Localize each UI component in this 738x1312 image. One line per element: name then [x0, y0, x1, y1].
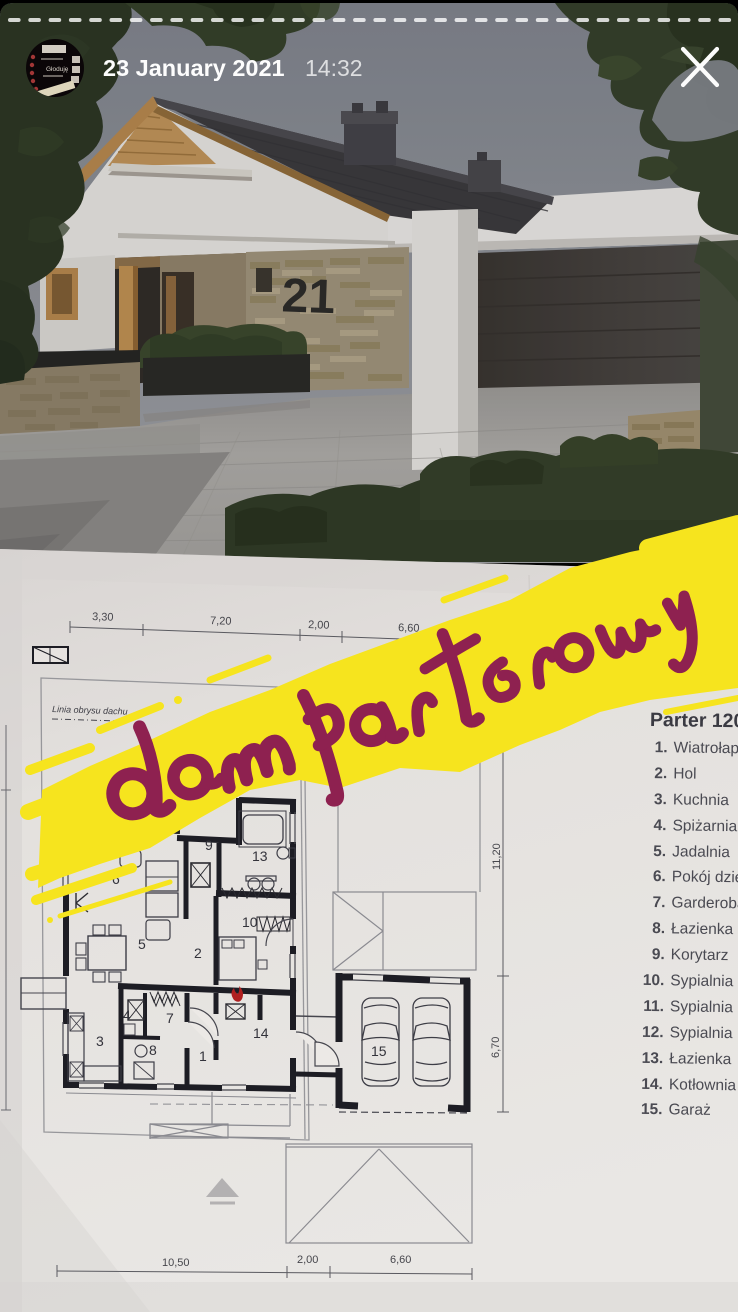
- svg-text:8: 8: [149, 1042, 157, 1058]
- svg-text:7.: 7.: [652, 894, 665, 911]
- svg-text:7,20: 7,20: [210, 615, 232, 628]
- svg-text:Kuchnia: Kuchnia: [673, 791, 730, 809]
- svg-text:1: 1: [199, 1048, 207, 1064]
- svg-text:12.: 12.: [642, 1024, 664, 1041]
- svg-text:10: 10: [242, 914, 258, 930]
- svg-text:Sypialnia: Sypialnia: [670, 998, 734, 1016]
- svg-text:6,70: 6,70: [490, 1037, 502, 1058]
- svg-text:Korytarz: Korytarz: [671, 946, 729, 964]
- svg-text:2,00: 2,00: [308, 619, 330, 632]
- svg-text:3,30: 3,30: [92, 611, 114, 624]
- svg-text:14:32: 14:32: [305, 55, 363, 81]
- svg-text:Łazienka: Łazienka: [669, 1050, 732, 1068]
- svg-text:6.: 6.: [653, 868, 666, 885]
- svg-text:Jadalnia: Jadalnia: [672, 843, 730, 861]
- svg-text:10,50: 10,50: [162, 1257, 190, 1269]
- svg-text:1.: 1.: [655, 739, 668, 756]
- svg-text:6,60: 6,60: [390, 1254, 411, 1266]
- svg-text:Wiatrołap: Wiatrołap: [673, 739, 738, 757]
- svg-text:Głoduję: Głoduję: [46, 66, 69, 73]
- svg-text:3.: 3.: [654, 791, 667, 808]
- svg-text:15: 15: [371, 1043, 387, 1059]
- svg-text:7: 7: [166, 1010, 174, 1026]
- svg-text:Sypialnia: Sypialnia: [670, 1024, 734, 1042]
- svg-text:2.: 2.: [654, 765, 667, 782]
- svg-text:Łazienka: Łazienka: [671, 920, 734, 938]
- svg-text:Kotłownia: Kotłownia: [669, 1076, 737, 1094]
- svg-text:4: 4: [123, 1007, 131, 1023]
- svg-text:3: 3: [96, 1033, 104, 1049]
- svg-text:Garderoba: Garderoba: [671, 894, 738, 912]
- svg-text:23 January 2021: 23 January 2021: [103, 55, 285, 81]
- svg-text:14: 14: [253, 1025, 269, 1041]
- svg-text:Garaż: Garaż: [668, 1101, 710, 1119]
- svg-text:10.: 10.: [643, 972, 665, 989]
- svg-text:Sypialnia: Sypialnia: [670, 972, 734, 990]
- svg-text:2: 2: [194, 945, 202, 961]
- svg-text:Spiżarnia: Spiżarnia: [672, 817, 737, 835]
- svg-text:8.: 8.: [652, 920, 665, 937]
- svg-text:5.: 5.: [653, 843, 666, 860]
- svg-text:14.: 14.: [641, 1076, 663, 1093]
- svg-text:2,00: 2,00: [297, 1254, 318, 1266]
- svg-text:13.: 13.: [642, 1050, 664, 1067]
- svg-text:13: 13: [252, 848, 268, 864]
- svg-text:4.: 4.: [653, 817, 666, 834]
- svg-text:9: 9: [205, 837, 213, 853]
- svg-text:11.: 11.: [643, 998, 664, 1015]
- svg-text:Hol: Hol: [673, 765, 697, 782]
- svg-text:15.: 15.: [641, 1101, 663, 1118]
- svg-text:5: 5: [138, 936, 146, 952]
- svg-text:Pokój dzie: Pokój dzie: [672, 868, 738, 886]
- svg-text:11,20: 11,20: [491, 843, 503, 870]
- svg-text:9.: 9.: [652, 946, 665, 963]
